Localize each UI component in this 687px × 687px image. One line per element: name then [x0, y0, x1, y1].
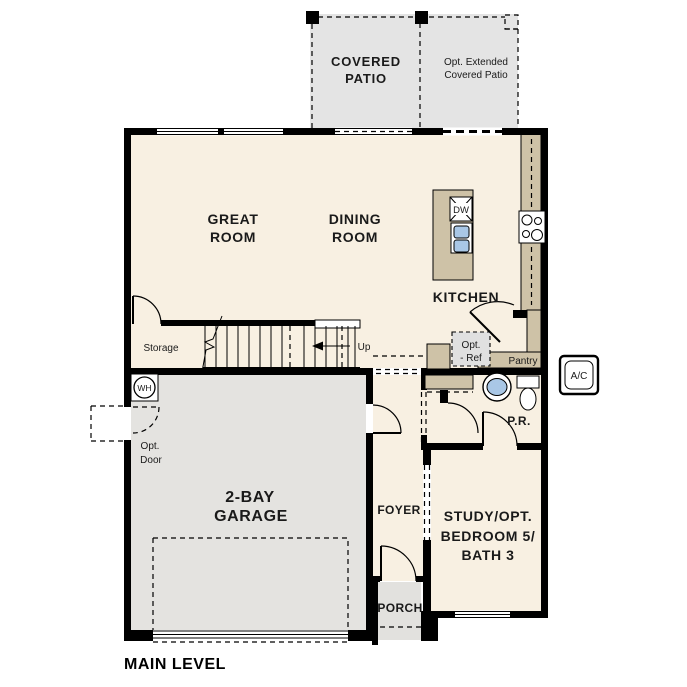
patio-post-right: [415, 11, 428, 24]
garage-label-2: GARAGE: [214, 508, 288, 525]
garage-door: [153, 630, 348, 642]
patio-post-left: [306, 11, 319, 24]
dining-room-label-2: ROOM: [332, 229, 378, 245]
pr-label: P.R.: [507, 414, 530, 428]
kitchen-island: [433, 190, 473, 280]
kitchen-label: KITCHEN: [433, 289, 499, 305]
window-great-room-1: [157, 128, 218, 136]
study-label-3: BATH 3: [461, 547, 514, 563]
dining-room-label: DINING: [329, 211, 382, 227]
great-room-label-2: ROOM: [210, 229, 256, 245]
dw-label: DW: [453, 205, 469, 216]
window-study: [455, 611, 510, 619]
opt-patio-label: Opt. Extended: [444, 57, 508, 68]
plan-title: MAIN LEVEL: [124, 656, 226, 673]
cooktop-icon: [519, 211, 545, 243]
floor-plan: COVERED PATIO Opt. Extended Covered Pati…: [0, 0, 687, 687]
opt-door-label: Opt.: [141, 441, 160, 452]
covered-patio-label: COVERED: [331, 54, 401, 69]
opt-patio-label-2: Covered Patio: [444, 70, 508, 81]
foyer-label: FOYER: [377, 503, 420, 517]
opt-window-kitchen: [443, 128, 502, 136]
storage-label: Storage: [143, 343, 178, 354]
great-room-label: GREAT: [208, 211, 259, 227]
wh-label: WH: [137, 383, 151, 393]
opt-ref-label-2: - Ref: [460, 353, 482, 364]
ac-label: A/C: [571, 371, 588, 382]
opt-door-label-2: Door: [140, 455, 162, 466]
study-label: STUDY/OPT.: [444, 508, 532, 524]
window-great-room-2: [224, 128, 283, 136]
island-sink-icon: [451, 223, 472, 253]
garage-label: 2-BAY: [225, 489, 275, 506]
covered-patio-label-2: PATIO: [345, 71, 387, 86]
pantry-label: Pantry: [509, 356, 538, 367]
patio-sliding-door: [335, 128, 412, 136]
up-label: Up: [358, 342, 371, 353]
porch-label: PORCH: [377, 601, 422, 615]
pr-sink-icon: [483, 373, 511, 401]
opt-ref-label: Opt.: [462, 340, 481, 351]
study-label-2: BEDROOM 5/: [441, 528, 536, 544]
